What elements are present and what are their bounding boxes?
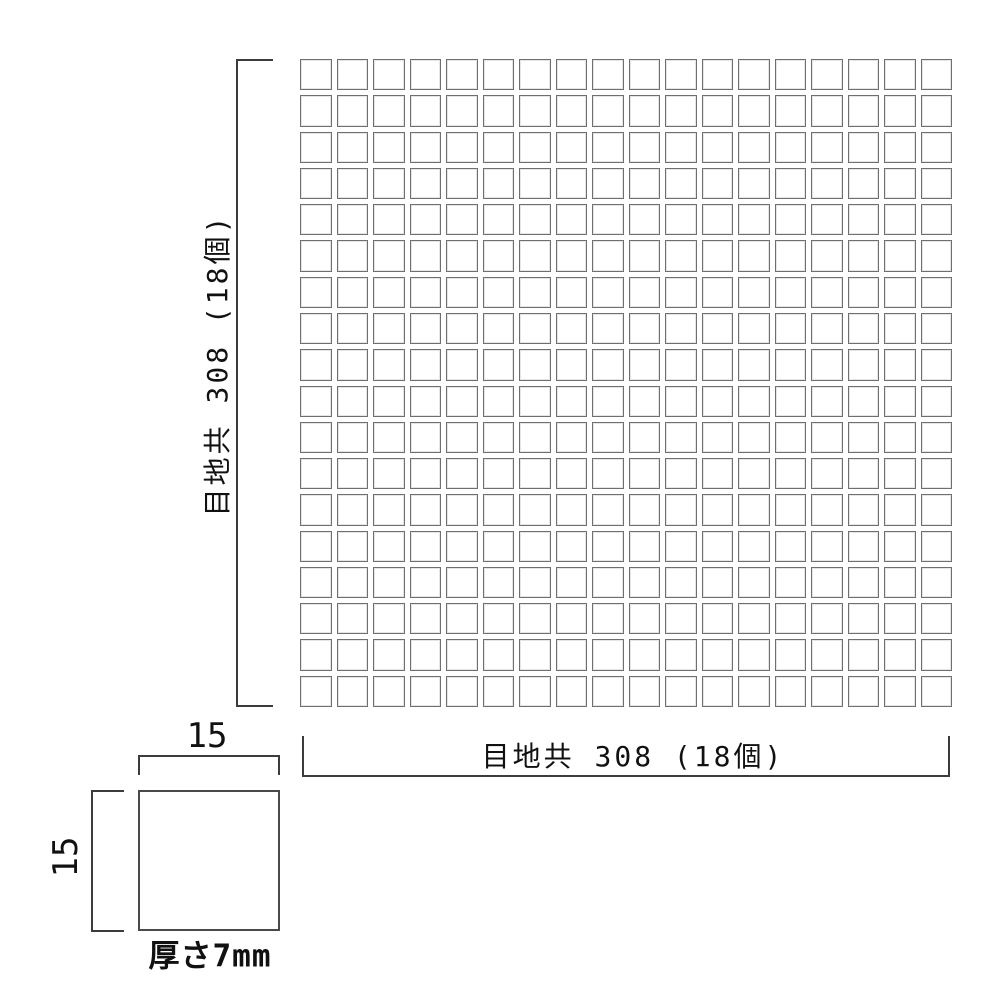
tile-detail-square bbox=[138, 790, 280, 931]
mosaic-tile bbox=[592, 386, 624, 417]
mosaic-tile bbox=[519, 639, 551, 670]
mosaic-tile bbox=[410, 132, 442, 163]
mosaic-tile bbox=[665, 639, 697, 670]
mosaic-tile bbox=[300, 567, 332, 598]
mosaic-tile bbox=[300, 204, 332, 235]
mosaic-tile bbox=[921, 567, 953, 598]
mosaic-tile bbox=[519, 313, 551, 344]
mosaic-tile bbox=[373, 458, 405, 489]
mosaic-tile bbox=[848, 168, 880, 199]
mosaic-tile bbox=[337, 567, 369, 598]
mosaic-tile bbox=[775, 386, 807, 417]
mosaic-tile bbox=[921, 531, 953, 562]
mosaic-tile bbox=[373, 59, 405, 90]
mosaic-tile bbox=[702, 422, 734, 453]
mosaic-tile bbox=[483, 277, 515, 308]
mosaic-tile bbox=[519, 386, 551, 417]
mosaic-tile bbox=[592, 168, 624, 199]
mosaic-tile bbox=[373, 204, 405, 235]
mosaic-tile bbox=[921, 386, 953, 417]
mosaic-tile bbox=[738, 132, 770, 163]
mosaic-tile bbox=[738, 313, 770, 344]
mosaic-tile bbox=[702, 168, 734, 199]
mosaic-tile bbox=[592, 531, 624, 562]
mosaic-tile bbox=[629, 494, 661, 525]
mosaic-tile bbox=[373, 277, 405, 308]
mosaic-tile bbox=[556, 458, 588, 489]
mosaic-tile bbox=[848, 349, 880, 380]
mosaic-tile bbox=[665, 132, 697, 163]
mosaic-tile bbox=[848, 639, 880, 670]
mosaic-tile bbox=[483, 494, 515, 525]
mosaic-tile bbox=[300, 95, 332, 126]
mosaic-tile bbox=[811, 277, 843, 308]
mosaic-tile bbox=[483, 313, 515, 344]
mosaic-tile bbox=[483, 567, 515, 598]
mosaic-tile bbox=[738, 422, 770, 453]
mosaic-tile bbox=[665, 603, 697, 634]
mosaic-tile bbox=[702, 494, 734, 525]
mosaic-tile bbox=[446, 313, 478, 344]
mosaic-tile bbox=[519, 59, 551, 90]
mosaic-tile bbox=[519, 603, 551, 634]
mosaic-tile bbox=[300, 313, 332, 344]
tile-thickness-label: 厚さ7mm bbox=[149, 931, 272, 976]
tile-width-dimension-line bbox=[138, 755, 280, 775]
mosaic-tile bbox=[519, 531, 551, 562]
mosaic-tile bbox=[811, 204, 843, 235]
mosaic-tile bbox=[738, 603, 770, 634]
mosaic-tile bbox=[300, 59, 332, 90]
mosaic-tile bbox=[629, 168, 661, 199]
mosaic-tile bbox=[592, 59, 624, 90]
mosaic-tile bbox=[702, 132, 734, 163]
mosaic-tile bbox=[775, 277, 807, 308]
mosaic-tile bbox=[373, 494, 405, 525]
mosaic-tile bbox=[483, 531, 515, 562]
mosaic-tile bbox=[629, 277, 661, 308]
mosaic-tile bbox=[702, 603, 734, 634]
mosaic-tile bbox=[519, 458, 551, 489]
mosaic-tile bbox=[702, 639, 734, 670]
mosaic-tile bbox=[702, 59, 734, 90]
mosaic-tile bbox=[738, 386, 770, 417]
mosaic-tile bbox=[446, 59, 478, 90]
mosaic-tile bbox=[884, 567, 916, 598]
mosaic-tile bbox=[738, 676, 770, 707]
mosaic-tile bbox=[446, 676, 478, 707]
mosaic-tile bbox=[556, 422, 588, 453]
mosaic-tile bbox=[921, 458, 953, 489]
mosaic-tile bbox=[665, 567, 697, 598]
mosaic-tile bbox=[410, 676, 442, 707]
mosaic-tile bbox=[483, 603, 515, 634]
mosaic-tile bbox=[884, 531, 916, 562]
mosaic-tile bbox=[921, 603, 953, 634]
mosaic-tile bbox=[373, 95, 405, 126]
mosaic-tile bbox=[300, 349, 332, 380]
tile-height-dimension-line bbox=[91, 790, 124, 932]
mosaic-tile bbox=[629, 313, 661, 344]
mosaic-tile bbox=[410, 603, 442, 634]
mosaic-tile bbox=[629, 422, 661, 453]
mosaic-tile bbox=[519, 204, 551, 235]
mosaic-tile bbox=[665, 204, 697, 235]
mosaic-tile bbox=[848, 59, 880, 90]
mosaic-tile bbox=[300, 132, 332, 163]
mosaic-tile bbox=[556, 59, 588, 90]
mosaic-tile bbox=[848, 386, 880, 417]
mosaic-tile bbox=[884, 95, 916, 126]
mosaic-tile bbox=[592, 603, 624, 634]
mosaic-tile bbox=[665, 349, 697, 380]
mosaic-tile bbox=[665, 95, 697, 126]
mosaic-tile bbox=[300, 676, 332, 707]
mosaic-tile bbox=[483, 204, 515, 235]
mosaic-tile bbox=[629, 95, 661, 126]
mosaic-tile bbox=[337, 458, 369, 489]
mosaic-tile bbox=[884, 204, 916, 235]
mosaic-tile bbox=[848, 494, 880, 525]
mosaic-tile bbox=[556, 132, 588, 163]
mosaic-tile bbox=[556, 204, 588, 235]
mosaic-tile bbox=[446, 567, 478, 598]
mosaic-tile bbox=[921, 95, 953, 126]
mosaic-tile bbox=[738, 567, 770, 598]
mosaic-tile bbox=[373, 386, 405, 417]
mosaic-tile bbox=[738, 168, 770, 199]
mosaic-tile bbox=[410, 168, 442, 199]
mosaic-tile bbox=[373, 240, 405, 271]
mosaic-tile bbox=[665, 386, 697, 417]
mosaic-tile bbox=[702, 567, 734, 598]
mosaic-tile bbox=[884, 603, 916, 634]
mosaic-tile bbox=[848, 95, 880, 126]
mosaic-tile bbox=[629, 603, 661, 634]
mosaic-tile bbox=[738, 494, 770, 525]
mosaic-tile bbox=[884, 313, 916, 344]
sheet-horizontal-dimension-label: 目地共 308 (18個) bbox=[482, 735, 785, 775]
mosaic-tile bbox=[629, 349, 661, 380]
mosaic-tile bbox=[884, 59, 916, 90]
mosaic-tile bbox=[811, 531, 843, 562]
mosaic-tile bbox=[921, 204, 953, 235]
mosaic-tile bbox=[446, 277, 478, 308]
mosaic-tile bbox=[556, 349, 588, 380]
mosaic-tile bbox=[410, 458, 442, 489]
mosaic-tile bbox=[592, 313, 624, 344]
mosaic-tile bbox=[519, 349, 551, 380]
mosaic-tile bbox=[702, 277, 734, 308]
mosaic-tile bbox=[373, 313, 405, 344]
mosaic-tile bbox=[556, 567, 588, 598]
mosaic-tile bbox=[775, 531, 807, 562]
mosaic-tile bbox=[775, 458, 807, 489]
mosaic-tile bbox=[592, 458, 624, 489]
mosaic-tile bbox=[775, 132, 807, 163]
mosaic-tile bbox=[811, 458, 843, 489]
mosaic-tile bbox=[410, 494, 442, 525]
mosaic-tile bbox=[592, 676, 624, 707]
mosaic-tile bbox=[811, 603, 843, 634]
mosaic-tile bbox=[702, 240, 734, 271]
mosaic-tile bbox=[921, 639, 953, 670]
mosaic-tile bbox=[921, 59, 953, 90]
mosaic-tile bbox=[811, 676, 843, 707]
mosaic-tile bbox=[738, 349, 770, 380]
mosaic-tile bbox=[775, 95, 807, 126]
mosaic-tile bbox=[592, 349, 624, 380]
sheet-vertical-dimension-line bbox=[236, 59, 273, 707]
mosaic-tile bbox=[775, 204, 807, 235]
mosaic-tile bbox=[665, 277, 697, 308]
mosaic-tile bbox=[775, 313, 807, 344]
mosaic-tile bbox=[410, 59, 442, 90]
mosaic-tile bbox=[775, 603, 807, 634]
mosaic-tile bbox=[665, 676, 697, 707]
mosaic-tile bbox=[483, 676, 515, 707]
mosaic-tile bbox=[446, 494, 478, 525]
mosaic-tile bbox=[665, 240, 697, 271]
tile-width-dimension-label: 15 bbox=[187, 716, 228, 756]
mosaic-tile bbox=[483, 386, 515, 417]
mosaic-tile bbox=[921, 676, 953, 707]
mosaic-tile bbox=[592, 494, 624, 525]
mosaic-tile bbox=[300, 494, 332, 525]
mosaic-tile bbox=[410, 277, 442, 308]
mosaic-tile bbox=[811, 313, 843, 344]
mosaic-tile bbox=[738, 59, 770, 90]
mosaic-tile bbox=[410, 240, 442, 271]
mosaic-tile bbox=[629, 567, 661, 598]
mosaic-tile bbox=[483, 458, 515, 489]
mosaic-tile bbox=[483, 95, 515, 126]
mosaic-tile bbox=[592, 240, 624, 271]
mosaic-tile bbox=[811, 59, 843, 90]
mosaic-tile bbox=[483, 132, 515, 163]
mosaic-tile bbox=[665, 422, 697, 453]
mosaic-tile bbox=[702, 313, 734, 344]
mosaic-tile bbox=[811, 422, 843, 453]
mosaic-tile bbox=[300, 168, 332, 199]
mosaic-tile bbox=[373, 168, 405, 199]
mosaic-tile bbox=[811, 639, 843, 670]
mosaic-tile bbox=[300, 458, 332, 489]
mosaic-tile bbox=[665, 458, 697, 489]
mosaic-tile bbox=[665, 313, 697, 344]
mosaic-tile bbox=[665, 494, 697, 525]
mosaic-tile bbox=[373, 567, 405, 598]
mosaic-tile bbox=[519, 168, 551, 199]
mosaic-tile bbox=[848, 676, 880, 707]
mosaic-tile bbox=[738, 531, 770, 562]
mosaic-tile bbox=[556, 168, 588, 199]
mosaic-tile bbox=[665, 168, 697, 199]
mosaic-tile bbox=[702, 95, 734, 126]
mosaic-tile bbox=[811, 240, 843, 271]
mosaic-tile bbox=[337, 422, 369, 453]
mosaic-tile bbox=[884, 168, 916, 199]
mosaic-tile bbox=[775, 240, 807, 271]
mosaic-tile bbox=[592, 567, 624, 598]
mosaic-tile bbox=[738, 204, 770, 235]
mosaic-tile bbox=[373, 603, 405, 634]
mosaic-tile bbox=[373, 422, 405, 453]
mosaic-tile bbox=[738, 277, 770, 308]
sheet-vertical-dimension-label: 目地共 308 (18個) bbox=[196, 214, 236, 517]
mosaic-tile bbox=[519, 277, 551, 308]
mosaic-tile bbox=[921, 494, 953, 525]
mosaic-tile bbox=[519, 95, 551, 126]
mosaic-tile bbox=[629, 639, 661, 670]
mosaic-tile bbox=[556, 494, 588, 525]
mosaic-tile bbox=[446, 240, 478, 271]
mosaic-tile bbox=[702, 458, 734, 489]
mosaic-tile bbox=[337, 95, 369, 126]
mosaic-tile bbox=[629, 240, 661, 271]
mosaic-tile bbox=[884, 458, 916, 489]
mosaic-tile bbox=[337, 676, 369, 707]
mosaic-tile bbox=[811, 567, 843, 598]
mosaic-tile bbox=[337, 349, 369, 380]
mosaic-tile bbox=[702, 531, 734, 562]
mosaic-grid bbox=[300, 59, 952, 707]
mosaic-tile bbox=[337, 204, 369, 235]
mosaic-tile bbox=[556, 676, 588, 707]
mosaic-tile bbox=[446, 349, 478, 380]
mosaic-tile bbox=[702, 349, 734, 380]
mosaic-tile bbox=[775, 567, 807, 598]
mosaic-tile bbox=[300, 386, 332, 417]
mosaic-tile bbox=[519, 567, 551, 598]
mosaic-tile bbox=[300, 277, 332, 308]
mosaic-tile bbox=[629, 204, 661, 235]
mosaic-tile bbox=[410, 386, 442, 417]
mosaic-tile bbox=[921, 422, 953, 453]
mosaic-tile bbox=[921, 313, 953, 344]
tile-height-dimension-label: 15 bbox=[46, 837, 86, 878]
mosaic-tile bbox=[337, 639, 369, 670]
mosaic-tile bbox=[629, 531, 661, 562]
mosaic-tile bbox=[884, 132, 916, 163]
mosaic-tile bbox=[775, 59, 807, 90]
mosaic-tile bbox=[884, 386, 916, 417]
mosaic-tile bbox=[775, 676, 807, 707]
mosaic-tile bbox=[337, 386, 369, 417]
mosaic-tile bbox=[300, 422, 332, 453]
mosaic-tile bbox=[848, 458, 880, 489]
mosaic-tile bbox=[483, 639, 515, 670]
mosaic-tile bbox=[446, 168, 478, 199]
mosaic-tile bbox=[921, 277, 953, 308]
mosaic-tile bbox=[884, 639, 916, 670]
mosaic-tile bbox=[410, 313, 442, 344]
mosaic-tile bbox=[811, 168, 843, 199]
mosaic-tile bbox=[410, 639, 442, 670]
mosaic-tile bbox=[300, 531, 332, 562]
mosaic-tile bbox=[665, 59, 697, 90]
mosaic-tile bbox=[848, 603, 880, 634]
mosaic-tile bbox=[848, 204, 880, 235]
mosaic-tile bbox=[300, 639, 332, 670]
mosaic-tile bbox=[446, 531, 478, 562]
mosaic-tile bbox=[373, 531, 405, 562]
mosaic-tile bbox=[483, 59, 515, 90]
mosaic-tile bbox=[446, 204, 478, 235]
mosaic-tile bbox=[702, 204, 734, 235]
mosaic-tile bbox=[410, 531, 442, 562]
mosaic-tile bbox=[592, 639, 624, 670]
mosaic-tile bbox=[446, 458, 478, 489]
mosaic-tile bbox=[884, 494, 916, 525]
mosaic-tile bbox=[337, 494, 369, 525]
mosaic-tile bbox=[446, 639, 478, 670]
mosaic-tile bbox=[629, 676, 661, 707]
mosaic-tile bbox=[337, 59, 369, 90]
mosaic-tile bbox=[921, 132, 953, 163]
mosaic-tile bbox=[848, 132, 880, 163]
mosaic-tile bbox=[556, 386, 588, 417]
mosaic-tile bbox=[373, 132, 405, 163]
mosaic-tile bbox=[702, 386, 734, 417]
mosaic-tile bbox=[410, 567, 442, 598]
mosaic-tile bbox=[337, 531, 369, 562]
mosaic-tile bbox=[629, 132, 661, 163]
mosaic-tile bbox=[884, 277, 916, 308]
mosaic-tile bbox=[921, 349, 953, 380]
mosaic-tile bbox=[775, 422, 807, 453]
mosaic-tile bbox=[483, 168, 515, 199]
mosaic-tile bbox=[884, 240, 916, 271]
mosaic-tile bbox=[921, 240, 953, 271]
mosaic-tile bbox=[446, 422, 478, 453]
mosaic-tile bbox=[337, 313, 369, 344]
mosaic-tile bbox=[519, 494, 551, 525]
mosaic-tile bbox=[556, 313, 588, 344]
mosaic-tile bbox=[592, 132, 624, 163]
mosaic-tile bbox=[373, 676, 405, 707]
mosaic-tile bbox=[337, 168, 369, 199]
mosaic-tile bbox=[738, 458, 770, 489]
mosaic-tile bbox=[556, 277, 588, 308]
mosaic-tile bbox=[775, 639, 807, 670]
mosaic-tile bbox=[556, 639, 588, 670]
mosaic-tile bbox=[665, 531, 697, 562]
mosaic-tile bbox=[884, 349, 916, 380]
mosaic-tile bbox=[738, 639, 770, 670]
mosaic-tile bbox=[446, 386, 478, 417]
mosaic-tile bbox=[848, 531, 880, 562]
mosaic-tile bbox=[410, 204, 442, 235]
mosaic-tile bbox=[592, 95, 624, 126]
mosaic-tile bbox=[483, 422, 515, 453]
mosaic-tile bbox=[629, 59, 661, 90]
mosaic-tile bbox=[884, 676, 916, 707]
mosaic-tile bbox=[410, 95, 442, 126]
mosaic-tile bbox=[592, 204, 624, 235]
mosaic-tile bbox=[337, 132, 369, 163]
mosaic-tile bbox=[629, 386, 661, 417]
mosaic-tile bbox=[629, 458, 661, 489]
mosaic-tile bbox=[884, 422, 916, 453]
mosaic-tile bbox=[556, 240, 588, 271]
mosaic-tile bbox=[519, 422, 551, 453]
mosaic-tile bbox=[556, 531, 588, 562]
mosaic-tile bbox=[811, 494, 843, 525]
mosaic-tile bbox=[446, 603, 478, 634]
mosaic-tile bbox=[592, 277, 624, 308]
mosaic-tile bbox=[702, 676, 734, 707]
